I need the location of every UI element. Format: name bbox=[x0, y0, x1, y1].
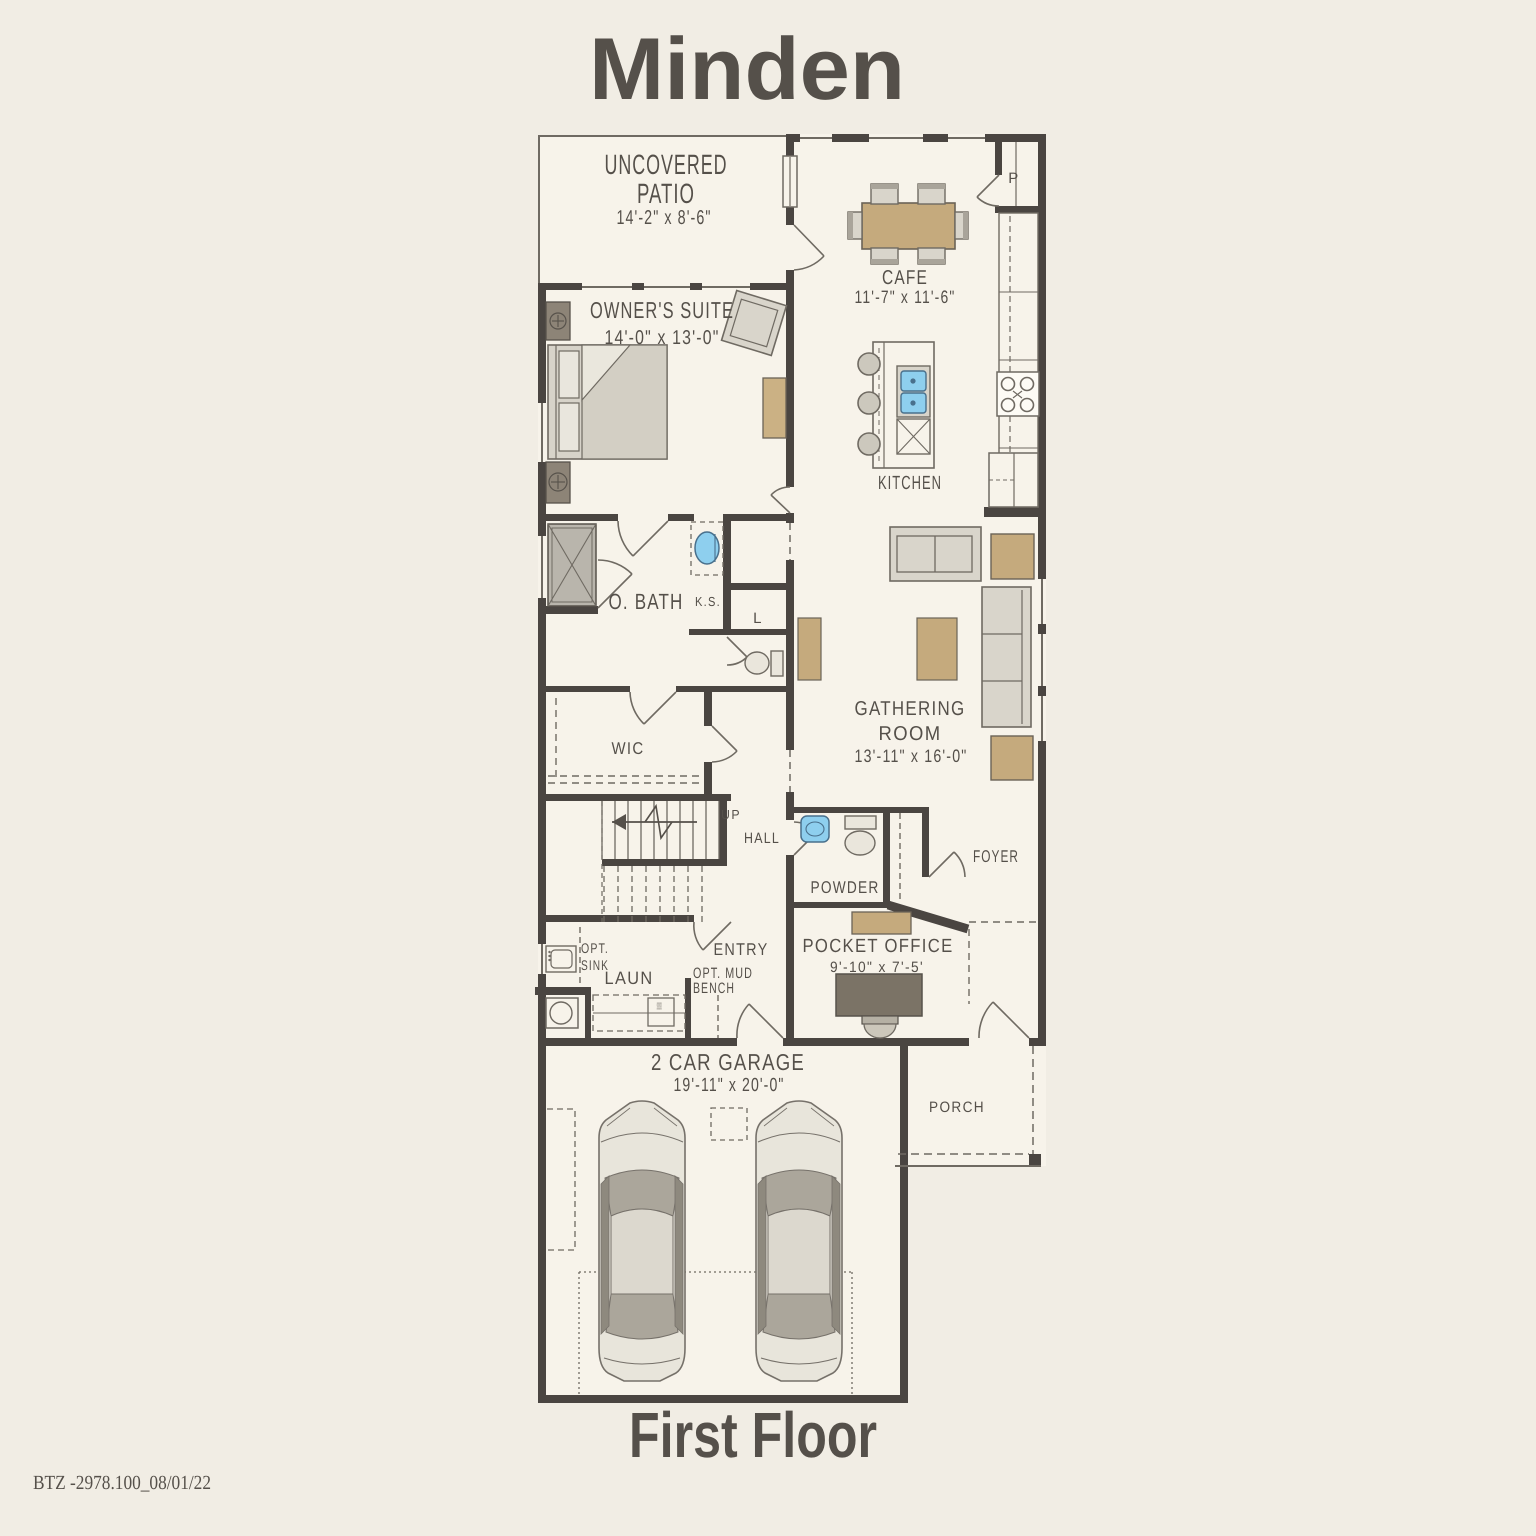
svg-text:Minden: Minden bbox=[589, 19, 905, 118]
svg-text:BENCH: BENCH bbox=[693, 980, 735, 997]
svg-text:POCKET OFFICE: POCKET OFFICE bbox=[803, 936, 954, 957]
svg-text:CAFE: CAFE bbox=[882, 267, 928, 289]
svg-text:HALL: HALL bbox=[744, 830, 780, 847]
svg-text:K.S.: K.S. bbox=[695, 594, 721, 609]
svg-text:9'-10" x 7'-5': 9'-10" x 7'-5' bbox=[830, 959, 924, 976]
svg-text:OWNER'S SUITE: OWNER'S SUITE bbox=[590, 297, 734, 323]
svg-text:UP: UP bbox=[721, 807, 741, 822]
svg-text:2 CAR GARAGE: 2 CAR GARAGE bbox=[651, 1049, 805, 1075]
svg-text:UNCOVERED: UNCOVERED bbox=[605, 149, 728, 180]
svg-text:19'-11" x 20'-0": 19'-11" x 20'-0" bbox=[674, 1075, 785, 1096]
svg-text:First Floor: First Floor bbox=[629, 1399, 877, 1471]
svg-text:SINK: SINK bbox=[581, 957, 609, 973]
svg-text:BTZ -2978.100_08/01/22: BTZ -2978.100_08/01/22 bbox=[33, 1472, 211, 1494]
svg-text:13'-11" x 16'-0": 13'-11" x 16'-0" bbox=[855, 746, 968, 766]
svg-text:▒: ▒ bbox=[657, 1002, 663, 1010]
svg-text:GATHERING: GATHERING bbox=[855, 698, 966, 720]
svg-text:ENTRY: ENTRY bbox=[714, 940, 769, 959]
svg-text:L: L bbox=[753, 610, 763, 627]
svg-text:FOYER: FOYER bbox=[973, 847, 1019, 866]
svg-text:O. BATH: O. BATH bbox=[609, 589, 684, 614]
svg-text:14'-0" x 13'-0": 14'-0" x 13'-0" bbox=[605, 327, 720, 349]
svg-text:PORCH: PORCH bbox=[929, 1099, 985, 1116]
svg-text:OPT.: OPT. bbox=[581, 940, 609, 956]
svg-text:14'-2" x 8'-6": 14'-2" x 8'-6" bbox=[617, 207, 712, 229]
svg-text:ROOM: ROOM bbox=[879, 723, 942, 745]
svg-text:LAUN: LAUN bbox=[605, 968, 654, 988]
svg-text:POWDER: POWDER bbox=[811, 878, 880, 897]
svg-text:11'-7" x 11'-6": 11'-7" x 11'-6" bbox=[855, 287, 956, 307]
svg-text:KITCHEN: KITCHEN bbox=[878, 473, 942, 494]
svg-text:PATIO: PATIO bbox=[637, 178, 695, 209]
svg-text:WIC: WIC bbox=[612, 739, 645, 758]
svg-text:P: P bbox=[1008, 170, 1020, 187]
